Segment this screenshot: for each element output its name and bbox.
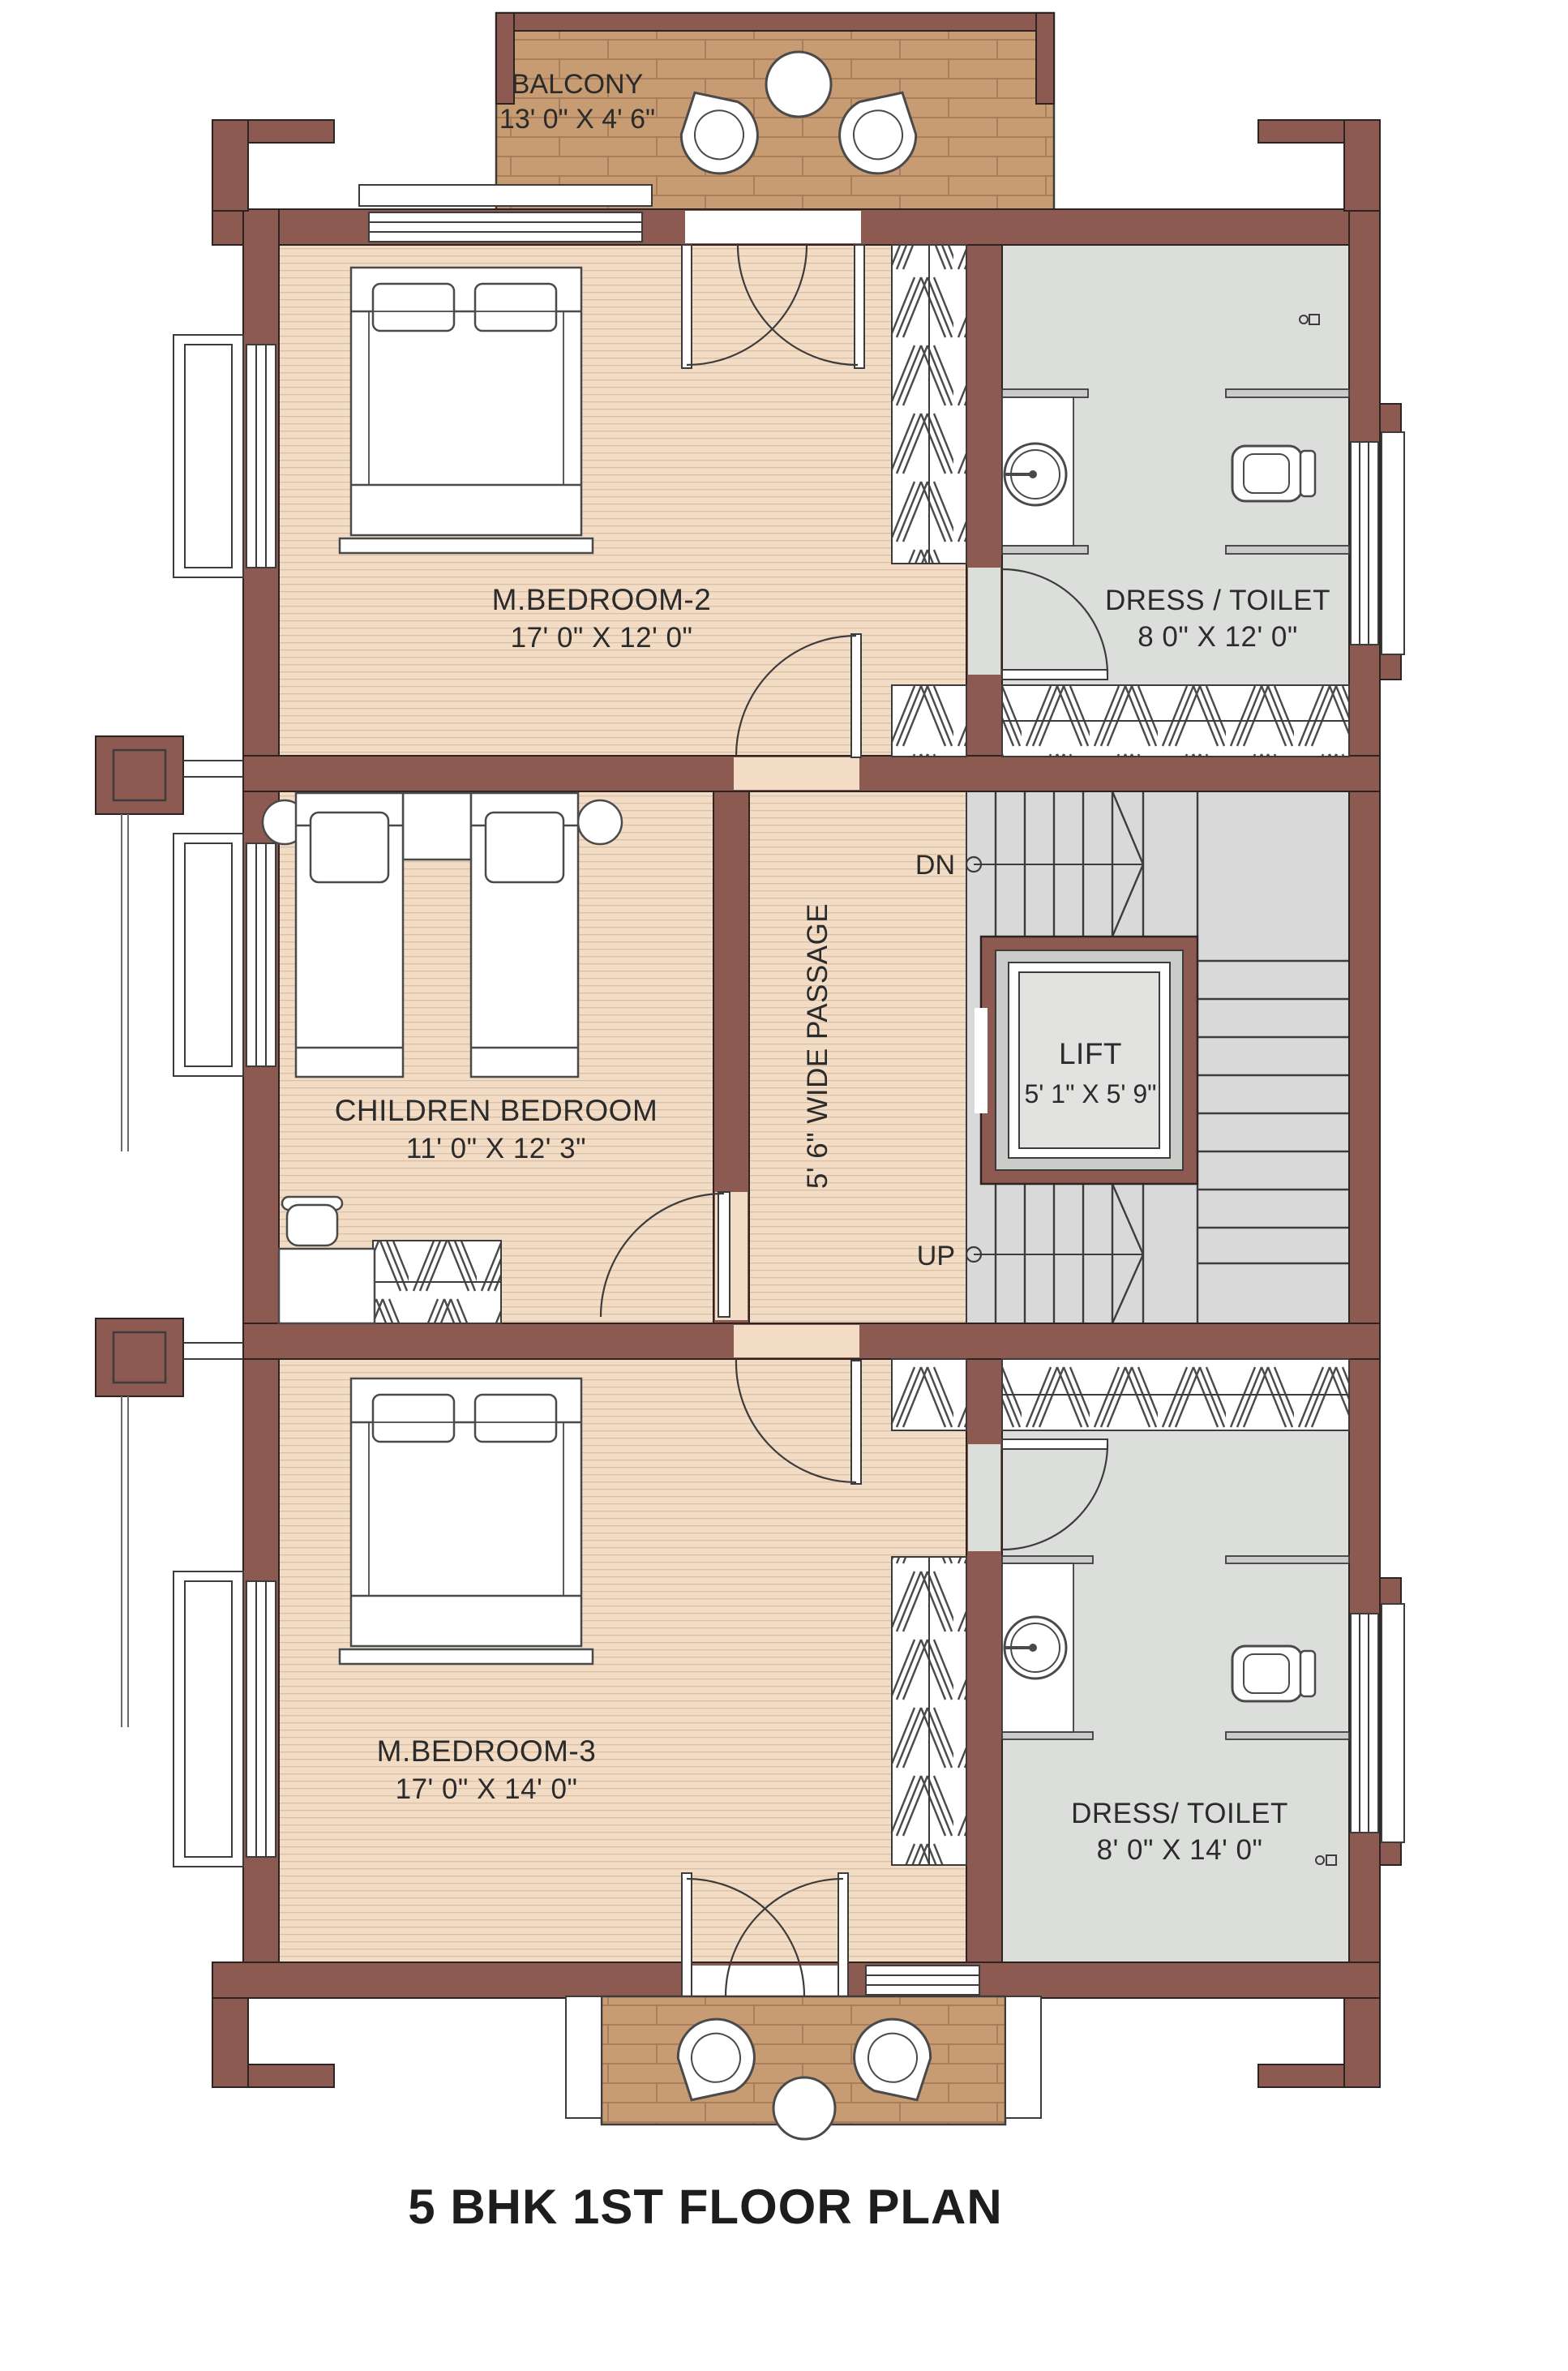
wall-corner: [1344, 1998, 1380, 2087]
pergola-column: [96, 736, 183, 814]
balcony-top-label: BALCONY: [512, 69, 644, 100]
door-leaf: [718, 1192, 730, 1317]
window-sill: [1382, 1604, 1404, 1842]
pillow-icon: [373, 284, 454, 331]
pillow-icon: [475, 284, 556, 331]
partition-wall: [1002, 389, 1088, 397]
pillow-icon: [486, 812, 563, 882]
passage-label: 5' 6" WIDE PASSAGE: [802, 903, 833, 1189]
door-leaf: [851, 634, 861, 757]
window: [1351, 1614, 1378, 1833]
wall-corner: [212, 120, 248, 211]
single-bed-icon: [296, 793, 403, 1077]
door-leaf: [682, 1873, 692, 1996]
window-sill: [359, 185, 652, 206]
children-bedroom-dims: 11' 0" X 12' 3": [406, 1133, 586, 1164]
double-bed-icon: [340, 268, 593, 553]
window-sill: [185, 1581, 232, 1857]
door-opening: [968, 568, 1000, 675]
balcony-top-dims: 13' 0" X 4' 6": [499, 104, 655, 135]
door-leaf: [851, 1361, 861, 1484]
door-opening: [734, 1325, 859, 1357]
tap-icon: [1029, 470, 1037, 478]
children-bedroom-label: CHILDREN BEDROOM: [335, 1094, 658, 1127]
page-title: 5 BHK 1ST FLOOR PLAN: [408, 2180, 1002, 2234]
wall-corner: [1258, 120, 1344, 143]
window-sill: [185, 843, 232, 1066]
door-leaf: [682, 245, 692, 368]
pillow-icon: [311, 812, 388, 882]
stool-icon: [578, 800, 622, 844]
dress-toilet-top-label: DRESS / TOILET: [1105, 585, 1330, 616]
wall-corner: [248, 2064, 334, 2087]
lift-label: LIFT: [1059, 1037, 1122, 1070]
dress-toilet-bottom-dims: 8' 0" X 14' 0": [1097, 1834, 1263, 1866]
m-bedroom-3-label: M.BEDROOM-3: [377, 1734, 597, 1768]
single-bed-icon: [471, 793, 578, 1077]
partition-wall: [1226, 1556, 1349, 1563]
door-leaf: [855, 245, 864, 368]
balcony-table-icon: [773, 2077, 835, 2139]
window: [246, 843, 276, 1066]
lift-dims: 5' 1" X 5' 9": [1024, 1079, 1156, 1108]
window-sill: [185, 345, 232, 568]
partition-wall: [1002, 1556, 1093, 1563]
m-bedroom-3-dims: 17' 0" X 14' 0": [396, 1773, 578, 1805]
door-opening: [685, 211, 861, 243]
window: [369, 212, 642, 242]
window: [1351, 442, 1378, 645]
window: [866, 1966, 979, 1995]
partition-wall: [1002, 546, 1088, 554]
balcony-wall: [496, 13, 1054, 31]
door-opening: [685, 1966, 843, 1998]
wardrobe: [892, 1359, 966, 1430]
balcony-sill: [566, 1996, 602, 2118]
desk-icon: [279, 1249, 375, 1323]
door-leaf: [838, 1873, 848, 1996]
wall-bedroom2-toilet: [966, 245, 1002, 756]
desk-chair-icon: [282, 1197, 342, 1246]
partition-wall: [1226, 546, 1349, 554]
tap-icon: [1029, 1644, 1037, 1652]
window-sill: [1382, 432, 1404, 654]
partition-wall: [1226, 1732, 1349, 1739]
wall-corner: [1258, 2064, 1344, 2087]
wall-corner: [1344, 120, 1380, 211]
wardrobe: [892, 685, 966, 757]
balcony-bottom: [566, 1996, 1041, 2139]
bed-bench-icon: [340, 1649, 593, 1664]
pergola-column: [96, 1318, 183, 1396]
door-leaf: [1002, 670, 1107, 680]
bed-bench-icon: [340, 538, 593, 553]
door-opening: [734, 757, 859, 790]
double-bed-icon: [340, 1378, 593, 1664]
m-bedroom-2-dims: 17' 0" X 12' 0": [511, 622, 693, 654]
wall-corner: [212, 1998, 248, 2087]
door-leaf: [1002, 1439, 1107, 1449]
wc-icon: [1232, 446, 1315, 501]
balcony-wall: [1036, 13, 1054, 104]
m-bedroom-2-label: M.BEDROOM-2: [492, 583, 712, 616]
window: [246, 345, 276, 568]
partition-wall: [1226, 389, 1349, 397]
door-opening: [968, 1444, 1000, 1551]
stairs-up-label: UP: [917, 1241, 955, 1271]
dress-toilet-top-dims: 8 0" X 12' 0": [1137, 621, 1298, 653]
nightstand-icon: [403, 793, 471, 860]
balcony-sill: [1005, 1996, 1041, 2118]
partition-wall: [1002, 1732, 1093, 1739]
balcony-table-icon: [766, 52, 831, 117]
pillow-icon: [373, 1395, 454, 1442]
pillow-icon: [475, 1395, 556, 1442]
wc-icon: [1232, 1646, 1315, 1701]
floor-plan-svg: BALCONY 13' 0" X 4' 6" M.BEDROOM-2 17' 0…: [0, 0, 1568, 2371]
window: [246, 1581, 276, 1857]
dress-toilet-bottom-label: DRESS/ TOILET: [1071, 1798, 1288, 1829]
wall-corner: [248, 120, 334, 143]
lift-door-opening: [975, 1008, 987, 1113]
stairs-dn-label: DN: [915, 850, 955, 881]
